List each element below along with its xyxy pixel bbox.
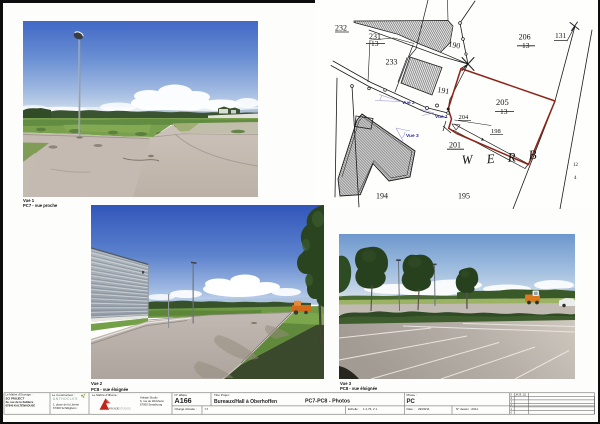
svg-text:Vue 3: Vue 3	[406, 133, 419, 139]
svg-text:233: 233	[386, 58, 398, 67]
svg-text:PC7-PC8 - Photos: PC7-PC8 - Photos	[305, 399, 350, 405]
svg-text:194: 194	[376, 192, 388, 201]
svg-text:Date :: Date :	[407, 407, 415, 411]
svg-text:195: 195	[458, 192, 470, 201]
svg-text:205: 205	[496, 97, 509, 107]
svg-text:1 2,76, 2 1: 1 2,76, 2 1	[363, 407, 378, 411]
svg-text:5: 5	[511, 394, 513, 397]
svg-text:Chargé d'étude :: Chargé d'étude :	[175, 407, 197, 411]
svg-text:Echelle :: Echelle :	[348, 407, 360, 411]
svg-text:B: B	[528, 147, 537, 163]
svg-text:Titre Projet :: Titre Projet :	[214, 393, 230, 397]
svg-text:ANTHOCLES: ANTHOCLES	[53, 397, 78, 401]
svg-text:PC: PC	[407, 399, 416, 405]
svg-text:198: 198	[491, 128, 501, 135]
svg-text:201: 201	[449, 141, 461, 150]
svg-text:E: E	[485, 151, 495, 167]
svg-text:131: 131	[555, 31, 567, 40]
svg-text:N° dessin : A011: N° dessin : A011	[456, 407, 478, 411]
svg-text:1: 1	[525, 394, 527, 397]
svg-text:67300 Schiltigheim: 67300 Schiltigheim	[53, 406, 77, 410]
svg-text:204: 204	[459, 114, 470, 121]
svg-text:29/09/11: 29/09/11	[418, 407, 430, 411]
svg-text:67840 KALTENHOUSE: 67840 KALTENHOUSE	[6, 404, 36, 408]
svg-text:Le Maître d'Œuvre :: Le Maître d'Œuvre :	[92, 393, 118, 397]
svg-text:12: 12	[573, 163, 579, 168]
svg-text:R: R	[506, 149, 516, 165]
svg-text:Vue 2: Vue 2	[402, 100, 415, 106]
svg-text:Bureaux/Hall à Oberhoffen: Bureaux/Hall à Oberhoffen	[214, 399, 277, 405]
svg-text:Phase :: Phase :	[407, 393, 417, 397]
svg-text:67000 Strasbourg: 67000 Strasbourg	[140, 402, 163, 406]
svg-text:0: 0	[511, 411, 513, 414]
svg-text:ARKADESTUDIOS: ARKADESTUDIOS	[109, 407, 131, 411]
svg-text:Le Constructeur :: Le Constructeur :	[52, 393, 75, 397]
svg-text:YJ: YJ	[205, 407, 209, 411]
svg-text:A166: A166	[175, 396, 192, 405]
svg-text:Vue 1: Vue 1	[435, 114, 448, 120]
svg-text:232: 232	[335, 23, 347, 32]
